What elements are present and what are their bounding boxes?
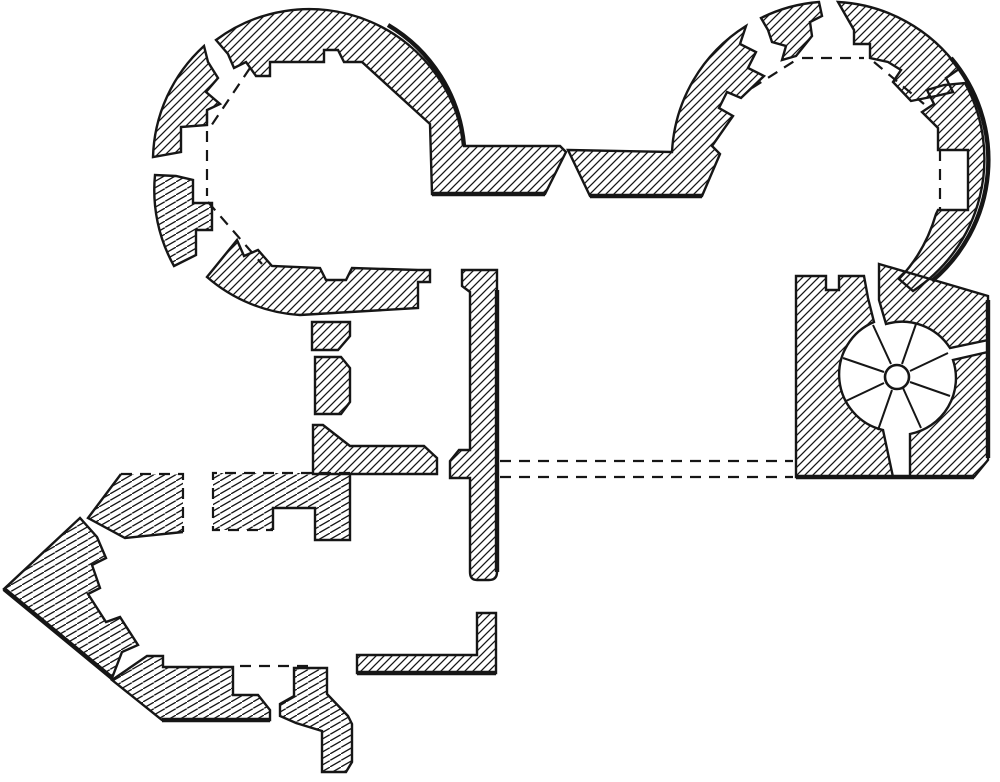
spiral-staircase [843, 324, 950, 430]
central-walls [213, 270, 793, 580]
nw-tower-west-wall [154, 175, 212, 266]
central-spine-wall [450, 270, 497, 580]
floor-plan-figure [0, 0, 1000, 782]
northwest-tower [153, 9, 566, 315]
spur-diagonal-band [88, 474, 183, 538]
south-l-wall [357, 613, 496, 673]
ne-tower-east-wall [899, 83, 984, 291]
stair-block-southeast-wall [910, 352, 988, 477]
ne-tower-top-left-wall [761, 2, 822, 60]
floor-plan-canvas [0, 0, 1000, 782]
nw-tower-upper-left-wall [153, 46, 220, 157]
court-passage-dashed-lines [500, 461, 793, 477]
nw-embrasure-dashed-lines [207, 68, 262, 264]
northeast-tower [568, 2, 988, 291]
ne-tower-main-wall [568, 26, 764, 196]
nw-tower-main-wall [216, 9, 566, 194]
nw-tower-south-wall [207, 240, 430, 315]
stair-block [796, 264, 988, 477]
stair-newel-post [885, 365, 909, 389]
stair-block-west-wall [796, 276, 893, 477]
court-pier-middle [315, 357, 350, 414]
south-curtain-east [280, 668, 352, 772]
south-wall [357, 613, 496, 673]
southwest-spur [4, 474, 352, 772]
court-pier-north [312, 322, 350, 350]
beak-spur-wall [4, 518, 138, 678]
court-pier-south-wall [313, 425, 437, 474]
